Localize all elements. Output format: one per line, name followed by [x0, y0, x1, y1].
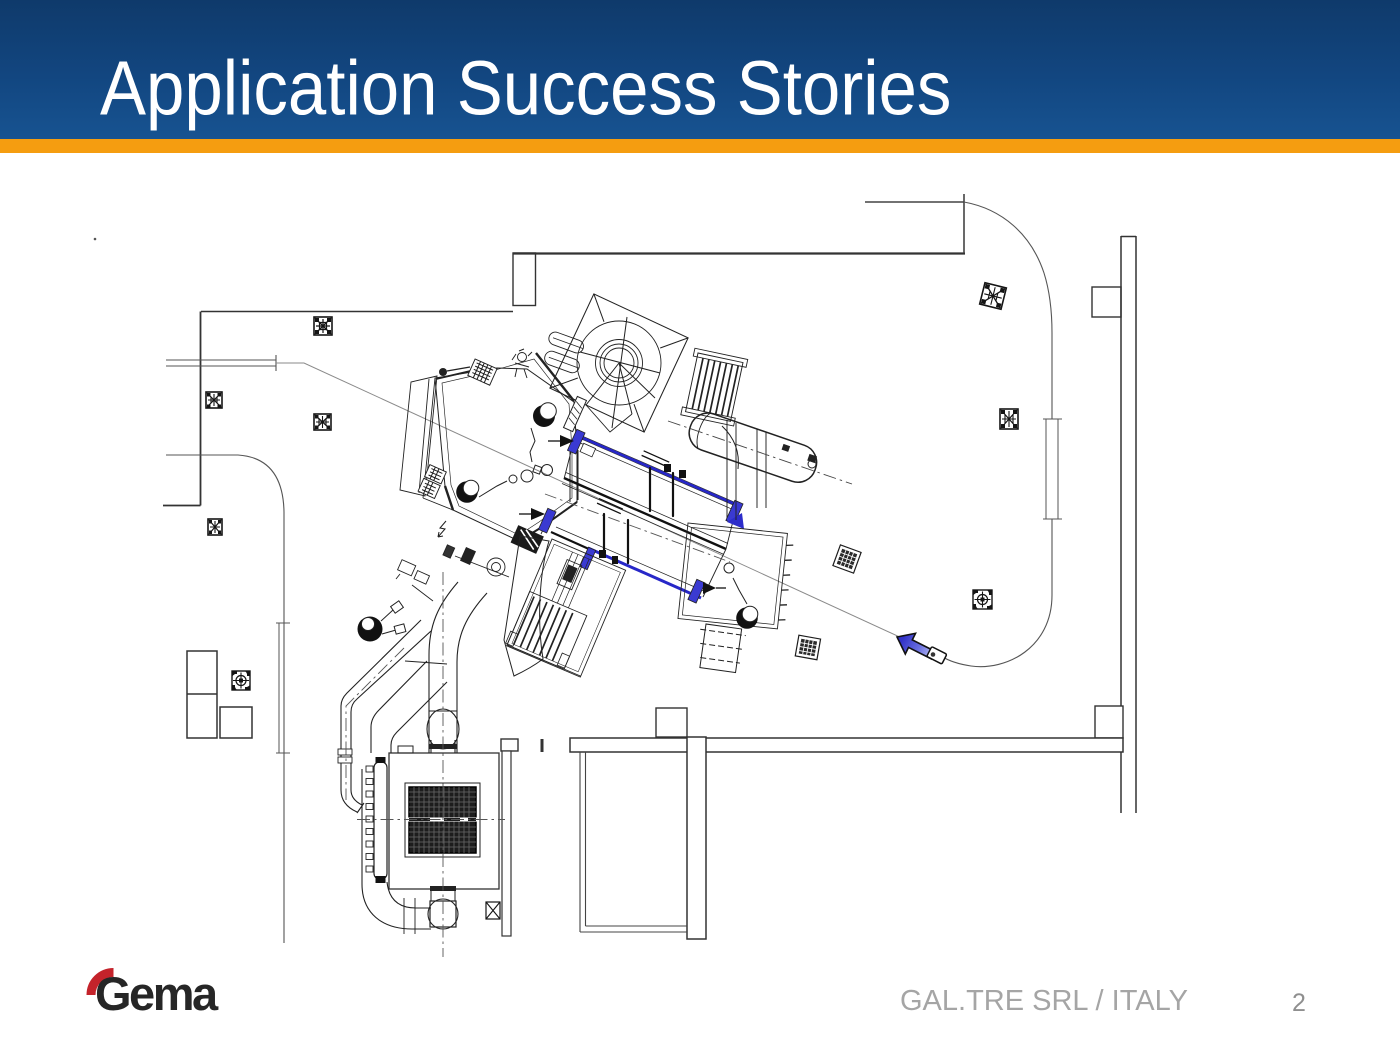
- svg-text:Gema: Gema: [95, 967, 219, 1020]
